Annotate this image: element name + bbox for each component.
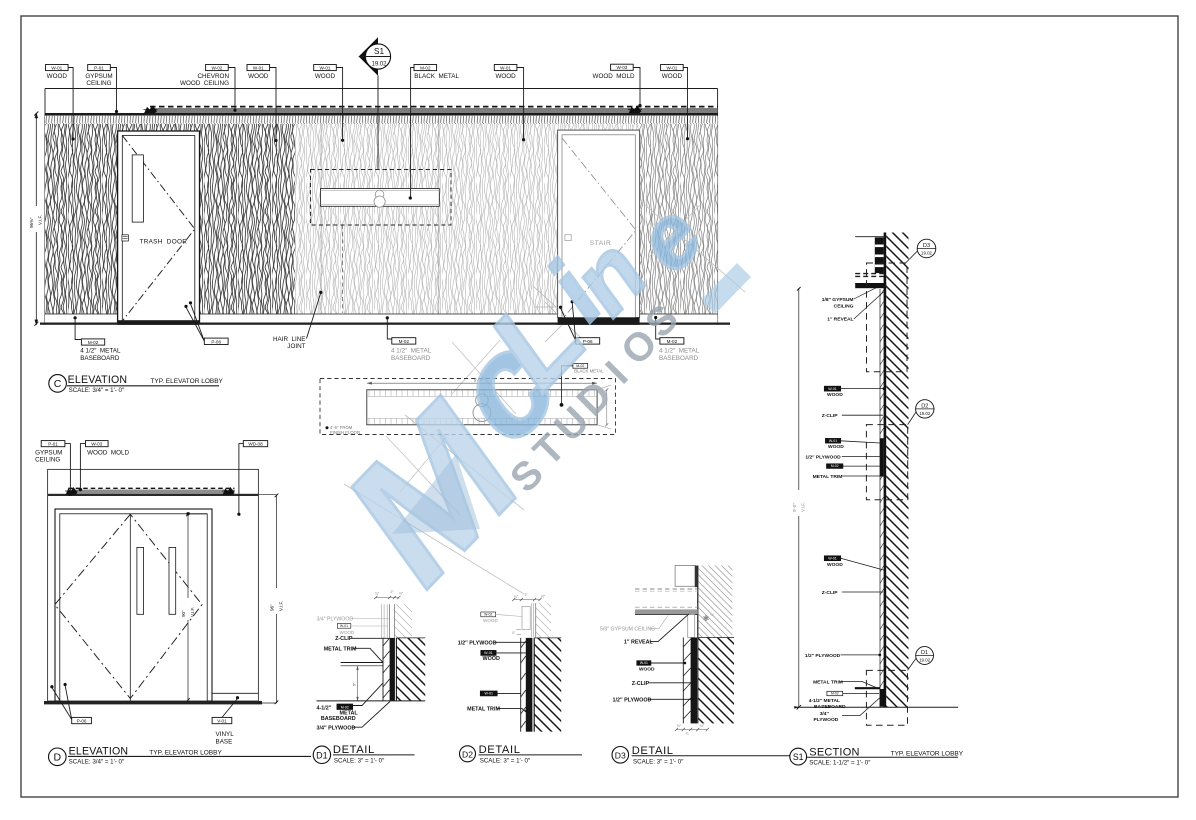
svg-text:ELEVATION: ELEVATION [69, 746, 129, 758]
svg-text:S1: S1 [374, 47, 384, 56]
svg-text:Z-CLIP: Z-CLIP [632, 681, 650, 687]
svg-text:1″ REVEAL: 1″ REVEAL [827, 317, 853, 323]
svg-text:TRASH DOOR: TRASH DOOR [140, 238, 188, 245]
svg-text:HAIR LINE: HAIR LINE [273, 336, 306, 343]
svg-text:¾: ¾ [686, 732, 689, 736]
svg-text:3/4″ PLYWOOD: 3/4″ PLYWOOD [317, 616, 354, 622]
svg-text:W-03: W-03 [91, 442, 102, 447]
svg-text:BLACK METAL: BLACK METAL [414, 73, 459, 80]
svg-text:W-01: W-01 [829, 439, 837, 443]
svg-text:D3: D3 [615, 750, 626, 760]
svg-text:GYPSUM: GYPSUM [85, 73, 112, 80]
svg-text:9′-0″: 9′-0″ [792, 503, 797, 512]
svg-text:1/2″ PLYWOOD: 1/2″ PLYWOOD [613, 697, 652, 703]
svg-text:W-01: W-01 [51, 65, 62, 70]
svg-text:WD-08: WD-08 [248, 442, 263, 447]
svg-text:W-02: W-02 [211, 65, 222, 70]
svg-text:BASE: BASE [216, 739, 233, 746]
svg-text:BASEBOARD: BASEBOARD [80, 355, 120, 362]
svg-text:96″: 96″ [270, 604, 275, 611]
svg-text:1/2″ PLYWOOD: 1/2″ PLYWOOD [805, 653, 841, 659]
svg-text:3/4″: 3/4″ [820, 711, 830, 717]
svg-text:WOOD: WOOD [828, 444, 844, 450]
svg-text:SCALE: 3″ = 1′- 0″: SCALE: 3″ = 1′- 0″ [480, 758, 531, 765]
svg-text:C: C [54, 378, 62, 390]
svg-text:96⅜″: 96⅜″ [29, 217, 34, 228]
svg-text:WOOD: WOOD [315, 73, 336, 80]
svg-text:W-01: W-01 [253, 65, 264, 70]
svg-text:SCALE: 3″ = 1′- 0″: SCALE: 3″ = 1′- 0″ [334, 758, 385, 765]
svg-text:4-1/2″: 4-1/2″ [317, 706, 332, 712]
svg-text:W-01: W-01 [484, 651, 493, 655]
svg-text:GYPSUM: GYPSUM [35, 449, 62, 456]
svg-text:W-02: W-02 [484, 613, 492, 617]
svg-text:W-01: W-01 [640, 661, 648, 665]
svg-text:1/2″ PLYWOOD: 1/2″ PLYWOOD [805, 454, 841, 460]
svg-text:D2: D2 [462, 749, 473, 759]
svg-text:SCALE: 3/4″ = 1′- 0″: SCALE: 3/4″ = 1′- 0″ [69, 759, 125, 766]
svg-text:METAL TRIM: METAL TRIM [813, 474, 843, 480]
svg-text:1″ REVEAL: 1″ REVEAL [624, 640, 654, 646]
svg-text:W-01: W-01 [484, 692, 493, 696]
svg-text:3/4″ PLYWOOD: 3/4″ PLYWOOD [317, 725, 356, 731]
svg-text:P-06: P-06 [211, 339, 221, 344]
svg-text:V.I.F.: V.I.F. [190, 607, 195, 617]
svg-text:M-02: M-02 [831, 464, 839, 468]
svg-text:SCALE: 3″ = 1′- 0″: SCALE: 3″ = 1′- 0″ [633, 758, 684, 765]
svg-text:METAL TRIM: METAL TRIM [467, 707, 500, 713]
svg-text:CEILING: CEILING [35, 457, 60, 464]
svg-text:WOOD: WOOD [495, 73, 516, 80]
svg-text:19.02: 19.02 [371, 62, 387, 68]
svg-text:W-01: W-01 [828, 557, 837, 561]
svg-text:S1: S1 [793, 752, 804, 762]
svg-text:1/8″ GYPSUM: 1/8″ GYPSUM [822, 297, 854, 303]
svg-text:V.I.F.: V.I.F. [278, 601, 283, 611]
svg-text:WOOD CEILING: WOOD CEILING [180, 80, 229, 87]
svg-text:TYP, ELEVATOR LOBBY: TYP, ELEVATOR LOBBY [149, 750, 222, 757]
svg-text:WOOD: WOOD [340, 630, 355, 635]
svg-text:M-02: M-02 [399, 339, 410, 344]
svg-text:BASEBOARD: BASEBOARD [321, 716, 356, 722]
svg-text:VINYL: VINYL [216, 731, 235, 738]
svg-text:19.02: 19.02 [919, 411, 931, 416]
svg-text:W-01: W-01 [666, 65, 677, 70]
svg-text:CEILING: CEILING [834, 303, 854, 309]
svg-text:Z-CLIP: Z-CLIP [335, 636, 353, 642]
svg-text:4 1/2″ METAL: 4 1/2″ METAL [391, 348, 432, 355]
svg-text:D1: D1 [316, 751, 328, 761]
svg-text:METAL TRIM: METAL TRIM [324, 646, 357, 652]
svg-text:P-01: P-01 [94, 65, 104, 70]
svg-text:Z-CLIP: Z-CLIP [822, 413, 838, 419]
svg-text:P-01: P-01 [48, 442, 58, 447]
svg-text:W-01: W-01 [500, 65, 511, 70]
svg-text:WOOD: WOOD [662, 73, 683, 80]
svg-text:W-03: W-03 [616, 65, 627, 70]
svg-text:ELEVATION: ELEVATION [68, 374, 128, 386]
svg-text:SECTION: SECTION [809, 746, 859, 758]
svg-text:M-02: M-02 [831, 692, 839, 696]
svg-text:WOOD: WOOD [639, 667, 655, 673]
svg-text:SCALE: 3/4″ = 1′- 0″: SCALE: 3/4″ = 1′- 0″ [69, 387, 125, 394]
svg-text:DETAIL: DETAIL [632, 745, 674, 757]
svg-text:D: D [54, 752, 62, 764]
svg-text:W-01: W-01 [828, 387, 837, 391]
svg-text:WOOD: WOOD [827, 562, 843, 568]
svg-text:✱: ✱ [703, 614, 710, 623]
svg-text:WOOD: WOOD [483, 656, 500, 662]
svg-text:WOOD MOLD: WOOD MOLD [593, 73, 635, 80]
svg-text:METAL TRIM: METAL TRIM [813, 679, 843, 685]
svg-text:1/2″ PLYWOOD: 1/2″ PLYWOOD [458, 640, 497, 646]
svg-text:M-02: M-02 [88, 340, 99, 345]
svg-text:CHEVRON: CHEVRON [198, 73, 230, 80]
svg-text:JOINT: JOINT [287, 343, 305, 350]
svg-text:WOOD: WOOD [483, 618, 498, 623]
svg-text:TYP. ELEVATOR LOBBY: TYP. ELEVATOR LOBBY [891, 750, 964, 757]
svg-text:D1: D1 [921, 650, 928, 656]
svg-text:BASEBOARD: BASEBOARD [659, 355, 699, 362]
svg-text:V.I.F.: V.I.F. [38, 215, 43, 225]
svg-text:W-01: W-01 [320, 65, 331, 70]
svg-text:V.I.F.: V.I.F. [801, 502, 806, 512]
svg-text:W-01: W-01 [340, 624, 348, 628]
svg-text:WOOD MOLD: WOOD MOLD [87, 449, 129, 456]
svg-text:WOOD: WOOD [827, 392, 843, 398]
svg-text:19.02: 19.02 [919, 658, 931, 663]
svg-text:TYP. ELEVATOR LOBBY: TYP. ELEVATOR LOBBY [150, 378, 223, 385]
svg-text:M-02: M-02 [341, 705, 349, 709]
svg-text:Z-CLIP: Z-CLIP [822, 590, 838, 596]
svg-text:D3: D3 [923, 243, 930, 249]
svg-text:SCALE: 1-1/2″ = 1′- 0″: SCALE: 1-1/2″ = 1′- 0″ [809, 760, 871, 767]
svg-text:P-06: P-06 [77, 719, 87, 724]
svg-text:5/8″ GYPSUM CEILING: 5/8″ GYPSUM CEILING [600, 626, 655, 632]
svg-text:½: ½ [512, 631, 516, 634]
svg-text:V-01: V-01 [217, 719, 227, 724]
svg-text:4-1/2″ METAL: 4-1/2″ METAL [809, 698, 840, 704]
svg-text:PLYWOOD: PLYWOOD [814, 717, 839, 723]
svg-text:D2: D2 [921, 403, 928, 409]
svg-text:90″: 90″ [181, 610, 186, 617]
svg-text:WOOD: WOOD [47, 73, 68, 80]
svg-text:4 1/2″ METAL: 4 1/2″ METAL [80, 348, 121, 355]
svg-text:19.02: 19.02 [921, 251, 933, 256]
svg-text:WOOD: WOOD [248, 73, 269, 80]
svg-text:CEILING: CEILING [86, 80, 111, 87]
svg-text:M-02: M-02 [420, 65, 431, 70]
